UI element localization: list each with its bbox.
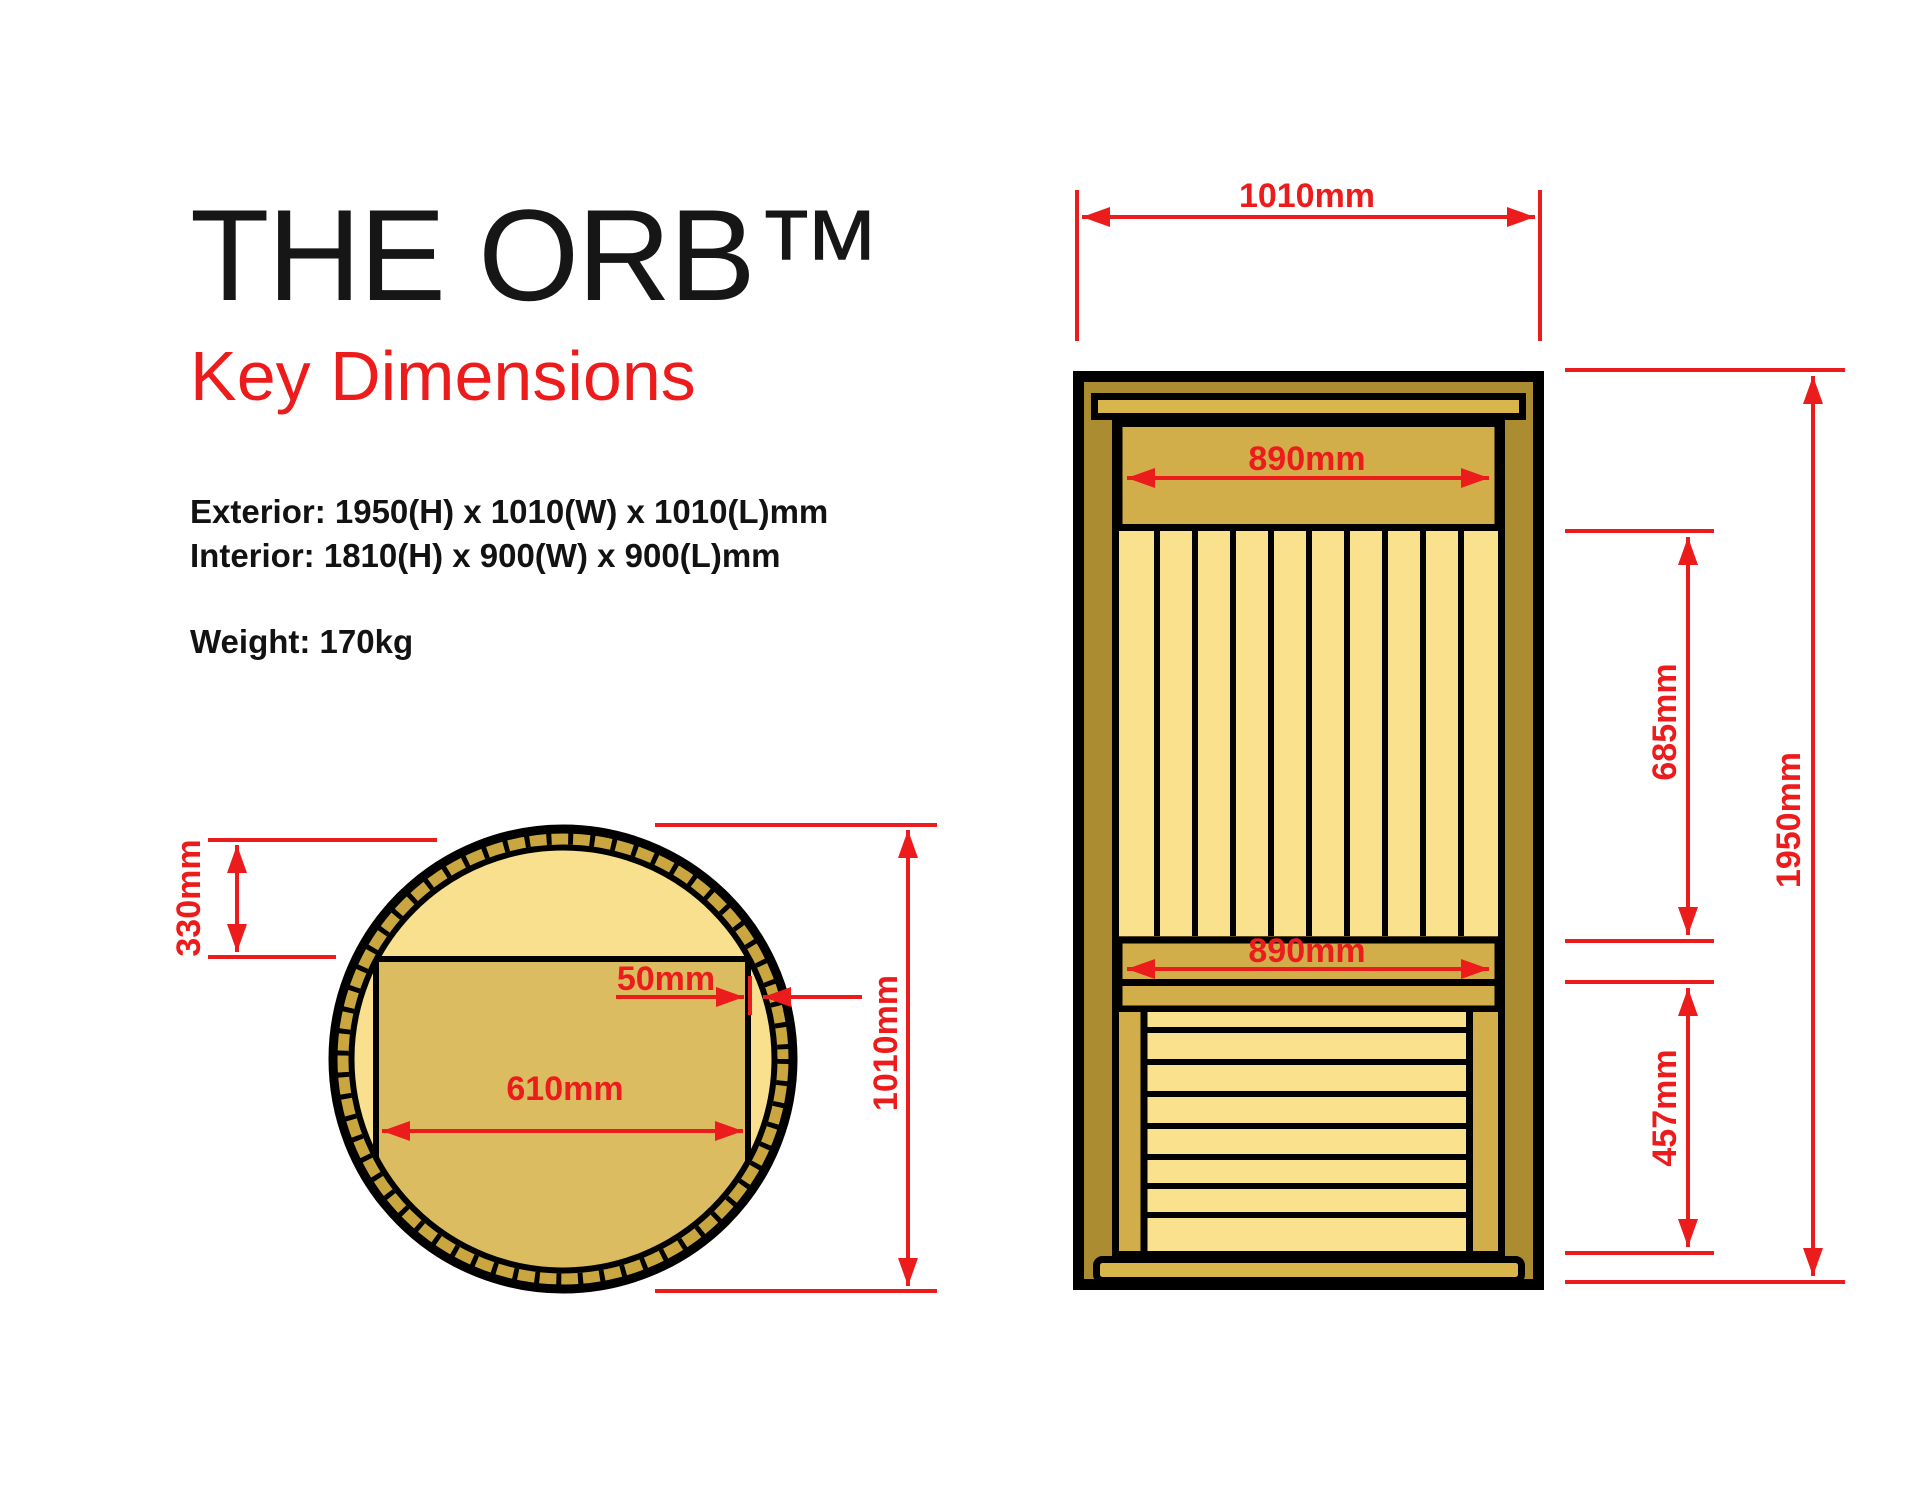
dim-457-label: 457mm <box>1646 1049 1684 1166</box>
dim-50-label: 50mm <box>617 960 715 998</box>
dim-685: 685mm <box>1565 531 1714 941</box>
dim-890-top-label: 890mm <box>1248 440 1365 478</box>
dim-1950-label: 1950mm <box>1770 752 1808 888</box>
dim-330-label: 330mm <box>170 839 208 956</box>
dim-685-label: 685mm <box>1646 663 1684 780</box>
bench-right-post <box>1472 1012 1498 1255</box>
top-trim-bar <box>1095 397 1523 417</box>
dim-457: 457mm <box>1565 982 1714 1253</box>
dimension-sheet: THE ORB™ Key Dimensions Exterior: 1950(H… <box>0 0 1920 1487</box>
page-title: THE ORB™ <box>190 182 882 328</box>
spec-interior: Interior: 1810(H) x 900(W) x 900(L)mm <box>190 537 781 574</box>
dim-1010-front-label: 1010mm <box>1239 177 1375 215</box>
bottom-sill <box>1097 1260 1522 1281</box>
diagram-svg: THE ORB™ Key Dimensions Exterior: 1950(H… <box>0 0 1920 1487</box>
top-view-diagram: 330mm 50mm 610mm 1010mm <box>170 825 937 1304</box>
dim-1010-topview-label: 1010mm <box>867 975 905 1111</box>
header-block: THE ORB™ Key Dimensions Exterior: 1950(H… <box>190 182 882 660</box>
bench-slats-panel <box>1147 1012 1466 1255</box>
spec-weight: Weight: 170kg <box>190 623 413 660</box>
dim-610-label: 610mm <box>506 1070 623 1108</box>
bench-left-post <box>1119 1012 1141 1255</box>
dim-1950: 1950mm <box>1565 370 1845 1282</box>
spec-exterior: Exterior: 1950(H) x 1010(W) x 1010(L)mm <box>190 493 828 530</box>
dim-1010-front: 1010mm <box>1077 177 1540 341</box>
front-view-diagram: 1010mm 890mm 890mm 685mm 457mm <box>1077 177 1845 1285</box>
page-subtitle: Key Dimensions <box>190 337 696 415</box>
dim-890-mid-label: 890mm <box>1248 932 1365 970</box>
